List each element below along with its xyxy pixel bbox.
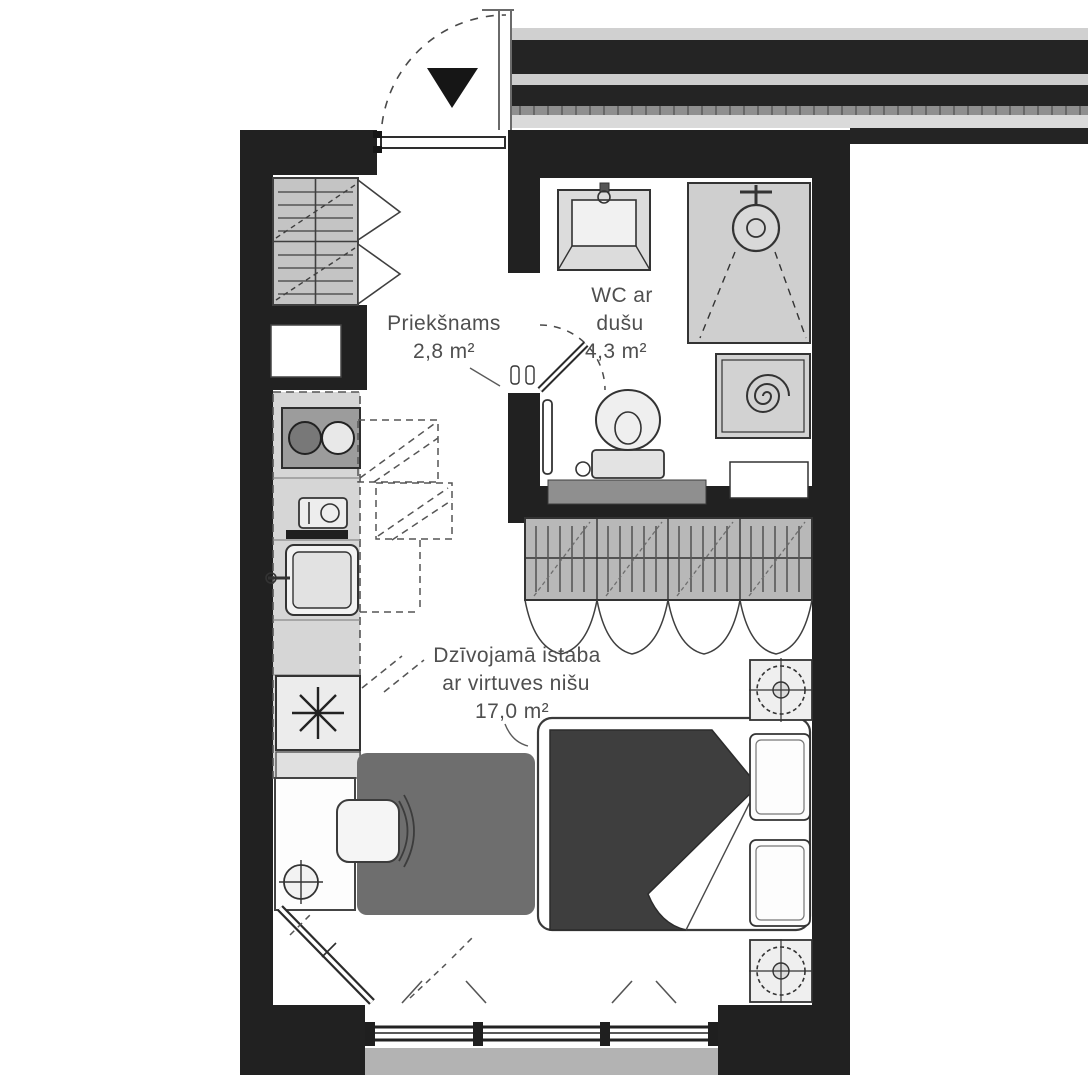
balcony-door-swing-dashes	[290, 913, 474, 998]
window-mullion	[473, 1022, 483, 1046]
wall-top-left	[240, 130, 377, 175]
wall-bottom-right	[718, 1005, 850, 1075]
hallway-label-leader	[470, 368, 500, 386]
window-post	[708, 1022, 718, 1046]
burner-right-icon	[322, 422, 354, 454]
living-label-leader	[505, 724, 528, 746]
hallway-area: 2,8 m²	[413, 340, 475, 363]
bathroom	[511, 183, 810, 478]
living-area: 17,0 m²	[475, 700, 549, 723]
door-jamb-right	[526, 366, 534, 384]
flush-button-icon	[576, 462, 590, 476]
entrance-hinge-bottom	[373, 146, 382, 153]
wardrobe-row	[525, 518, 812, 654]
partition-hall-wc-upper	[508, 178, 540, 273]
partition-hall-wc-lower	[508, 393, 540, 523]
closet-door-swing-upper	[358, 180, 400, 240]
toilet-tank	[592, 450, 664, 478]
entrance-door-leaf	[381, 137, 505, 148]
oven-symbol	[299, 498, 347, 528]
pillow-bottom	[750, 840, 810, 926]
shower-symbol	[688, 183, 810, 343]
living-label-line2: ar virtuves nišu	[442, 672, 590, 695]
entrance-door	[373, 10, 514, 153]
towel-radiator-symbol	[543, 400, 552, 474]
nightstand-top	[749, 658, 813, 722]
entrance-arrow-icon	[427, 68, 478, 108]
toilet-bowl	[596, 390, 660, 450]
window-mullion	[600, 1022, 610, 1046]
bathroom-sink-symbol	[558, 183, 650, 270]
entrance-jamb	[482, 10, 514, 130]
bed	[538, 718, 810, 930]
bathroom-area: 4,3 m²	[585, 340, 647, 363]
shower-head-icon	[733, 205, 779, 251]
nightstand-bottom	[749, 939, 813, 1003]
counter-dark-strip	[286, 530, 348, 539]
closet-door-swing-lower	[358, 244, 400, 304]
stripe-ticks	[520, 106, 1080, 115]
wall-bottom-left	[240, 1005, 365, 1075]
duct-niche-left	[271, 325, 341, 377]
entrance-hinge-top	[373, 131, 382, 138]
window-post	[365, 1022, 375, 1046]
kitchen-zone-hatch	[362, 656, 424, 692]
living-label-line1: Dzīvojamā istaba	[433, 644, 600, 667]
wc-threshold	[548, 480, 706, 504]
hallway-label: Priekšnams	[387, 312, 501, 335]
wall-left	[240, 130, 273, 1075]
kitchen	[266, 392, 452, 778]
wall-right	[812, 130, 850, 1075]
window-outer-ledge	[365, 1048, 718, 1075]
pillow-top	[750, 734, 810, 820]
kitchen-zone-boundary	[360, 540, 420, 612]
door-jamb-left	[511, 366, 519, 384]
burner-left-icon	[289, 422, 321, 454]
balcony-door	[280, 908, 474, 1002]
floor-plan-page: Priekšnams 2,8 m² WC ar dušu 4,3 m² Dzīv…	[0, 0, 1088, 1088]
building-context-stripes	[512, 28, 1088, 144]
base-cabinet	[276, 752, 360, 778]
bathroom-label-line1: WC ar	[591, 284, 653, 307]
fridge-symbol	[276, 676, 360, 750]
hallway-closet	[273, 178, 400, 305]
duct-niche-wc	[730, 462, 808, 498]
bathroom-label-line2: dušu	[596, 312, 643, 335]
floor-plan-drawing: Priekšnams 2,8 m² WC ar dušu 4,3 m² Dzīv…	[0, 0, 1088, 1088]
window-opening-ticks	[402, 981, 676, 1003]
window	[365, 981, 718, 1075]
toilet-symbol	[576, 390, 664, 478]
washing-machine-symbol	[716, 354, 810, 438]
wall-top-right	[508, 130, 850, 178]
